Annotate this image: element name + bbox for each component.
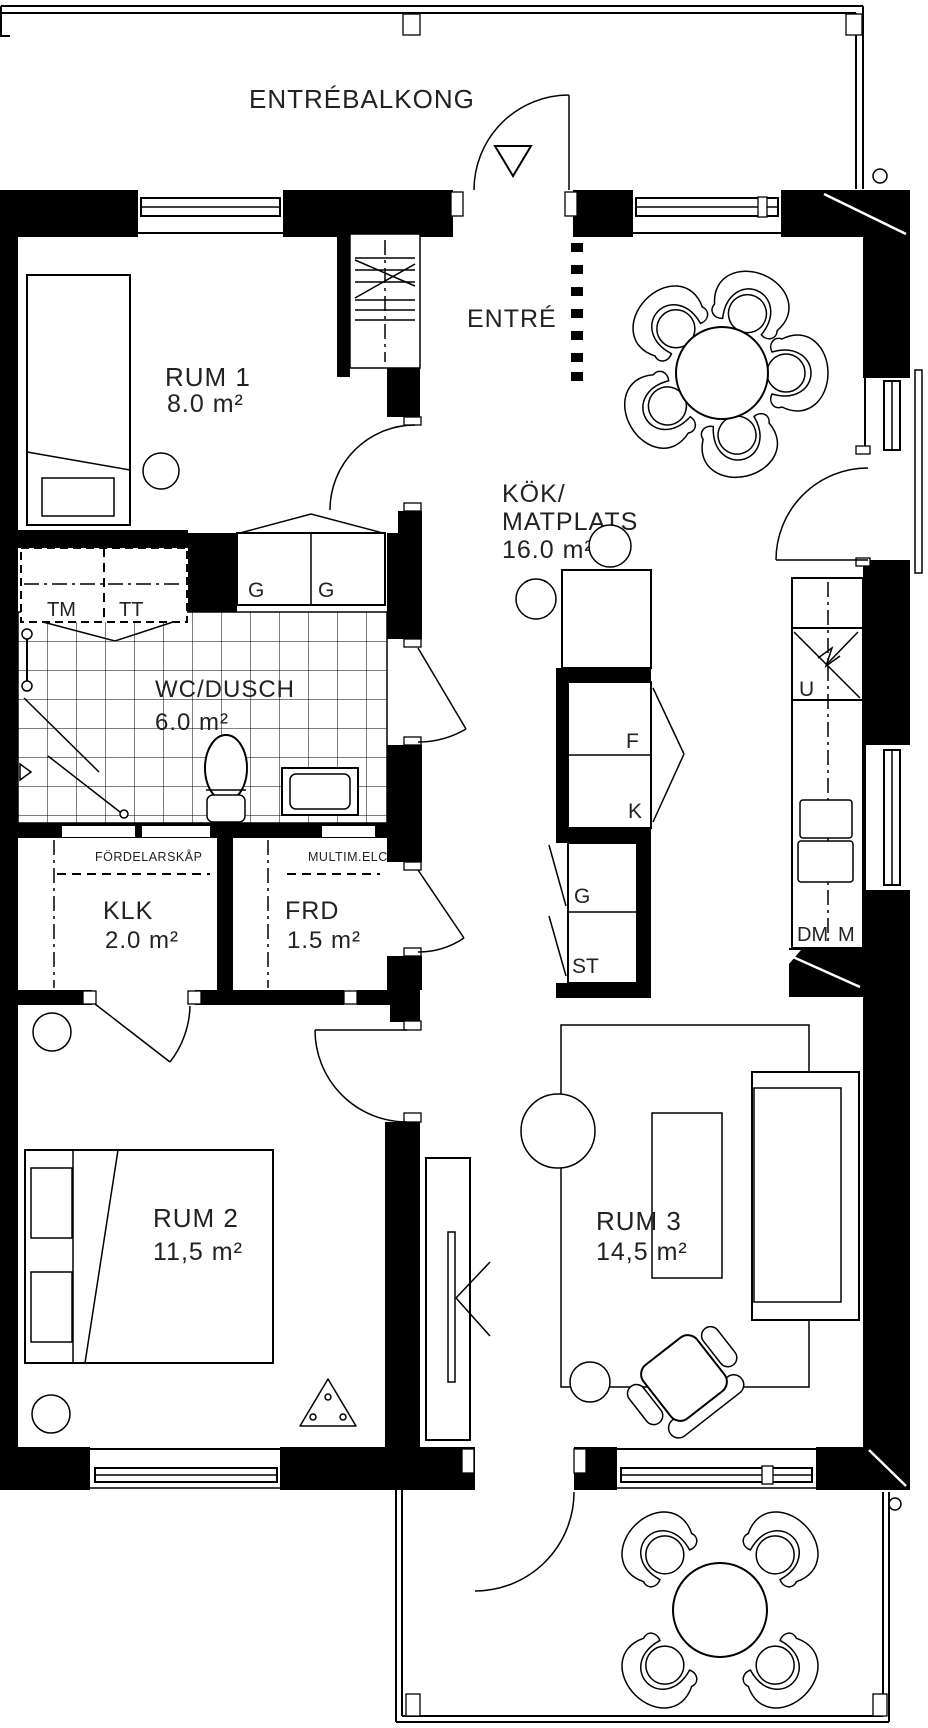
rum1-bed <box>27 275 130 525</box>
window-rum1 <box>138 190 283 237</box>
cabinet-g-label: G <box>574 885 590 908</box>
wc-label: WC/DUSCH <box>155 676 295 703</box>
rum2-stool <box>33 1013 71 1051</box>
hall-closet <box>350 234 420 368</box>
klk-note: FÖRDELARSKÅP <box>95 849 202 864</box>
window-right-lower <box>863 745 910 890</box>
dining-set <box>612 260 828 485</box>
open-plan-dashed-line <box>571 243 583 381</box>
dryer-label: TT <box>119 599 143 621</box>
rum2-door <box>315 1021 421 1122</box>
rum3-tv-bench <box>426 1158 490 1440</box>
kitchen-stool <box>589 525 631 567</box>
frd-note: MULTIM.ELC <box>308 850 388 864</box>
oven-label: U <box>799 678 814 701</box>
rum3-side-table <box>521 1094 595 1168</box>
frd-door <box>404 862 464 956</box>
entrance-arrow-icon <box>495 146 531 176</box>
hall-door <box>330 417 421 511</box>
frd-label: FRD <box>285 897 339 925</box>
rum2-label: RUM 2 <box>153 1203 239 1233</box>
klk-label: KLK <box>103 897 153 925</box>
rum3-area: 14,5 m² <box>596 1238 688 1266</box>
wc-washbasin <box>282 768 358 815</box>
rum3-armchair <box>619 1317 757 1449</box>
fridge-freezer-unit <box>568 682 684 828</box>
balcony-table <box>673 1563 767 1657</box>
wardrobe-g2-label: G <box>318 579 334 602</box>
rum2-triangle-symbol <box>300 1379 356 1426</box>
floorplan-drawing: ENTRÉBALKONG <box>0 0 928 1728</box>
floorplan-page: ENTRÉBALKONG <box>0 0 928 1728</box>
rum3-balcony-door <box>462 1449 586 1591</box>
freezer-label: K <box>628 800 642 823</box>
rum1-area: 8.0 m² <box>167 390 244 418</box>
french-balcony-rail <box>915 370 922 573</box>
window-right-upper <box>863 378 910 453</box>
wc-toilet <box>205 735 247 822</box>
wc-door <box>404 639 466 745</box>
rum3-sofa <box>752 1072 859 1320</box>
railing-post <box>403 14 420 35</box>
klk-area: 2.0 m² <box>105 927 179 954</box>
wardrobe-g1-label: G <box>248 579 264 602</box>
rum3-label: RUM 3 <box>596 1206 682 1236</box>
kitchen-area: 16.0 m² <box>502 536 594 564</box>
kitchen-stool <box>516 579 556 619</box>
frd-area: 1.5 m² <box>287 927 361 954</box>
window-rum3 <box>617 1447 816 1490</box>
drainpipe-icon <box>889 1498 901 1510</box>
rum3-stool <box>570 1362 610 1402</box>
rum1-stool <box>143 453 179 489</box>
dishwasher-label: DM <box>797 924 828 946</box>
micro-label: M <box>838 924 855 946</box>
kitchen-label-1: KÖK/ <box>502 480 566 508</box>
dining-table <box>676 327 768 419</box>
window-kitchen <box>633 190 781 237</box>
entrance-label: ENTRÉ <box>467 304 557 333</box>
drainpipe-icon <box>873 169 887 183</box>
washer-label: TM <box>47 599 76 621</box>
railing-post <box>406 1694 420 1716</box>
kitchen-balcony-door <box>776 446 870 566</box>
kitchen-counter-right <box>792 578 863 948</box>
balcony-dining-set <box>608 1498 831 1721</box>
rum2-stool <box>32 1395 70 1433</box>
cabinet-st-label: ST <box>572 955 599 978</box>
rum1-label: RUM 1 <box>165 362 251 392</box>
window-rum2 <box>90 1447 280 1490</box>
railing-post <box>873 1694 887 1716</box>
kitchen-island <box>562 570 651 668</box>
railing-post <box>846 14 862 35</box>
wc-area: 6.0 m² <box>155 709 229 736</box>
rum2-area: 11,5 m² <box>153 1238 243 1266</box>
top-balcony-label: ENTRÉBALKONG <box>249 84 475 114</box>
fridge-label: F <box>626 730 639 753</box>
